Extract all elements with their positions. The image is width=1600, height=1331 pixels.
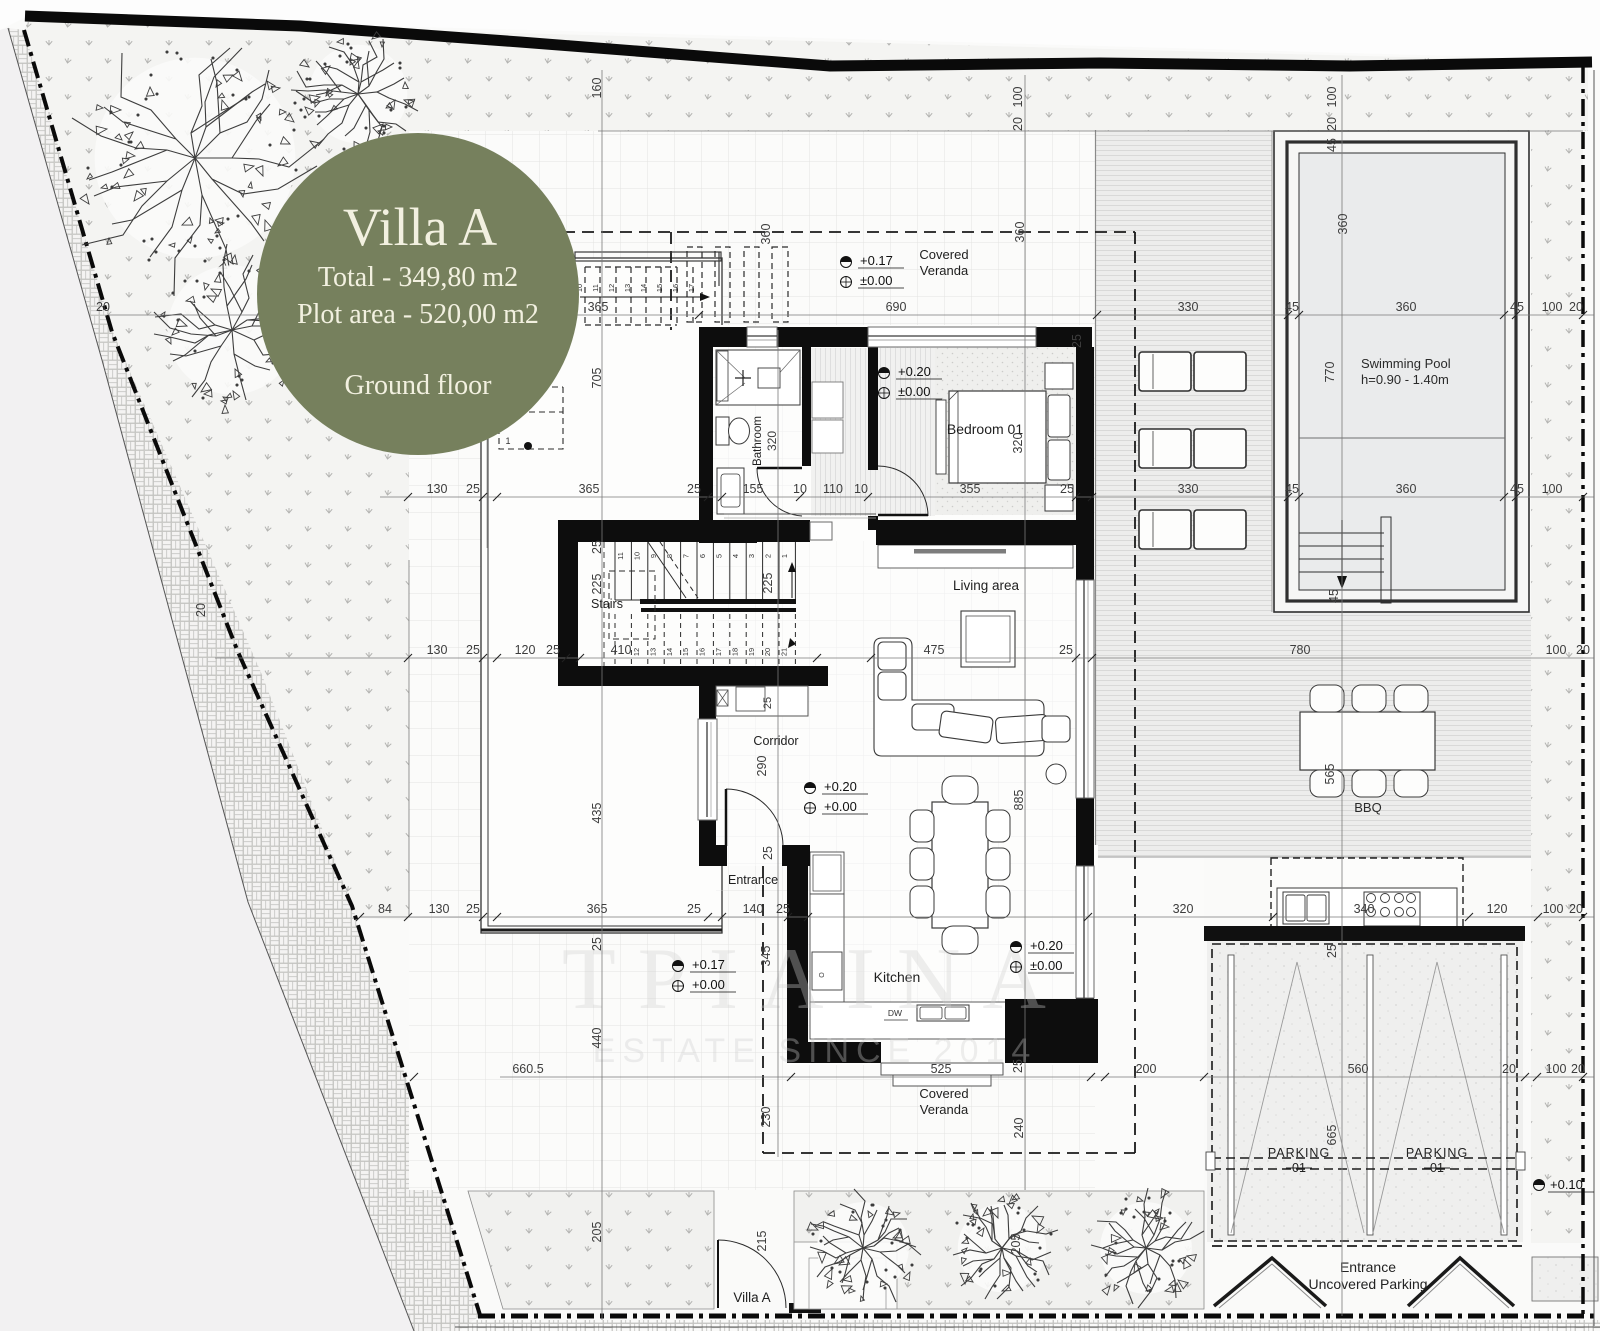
svg-text:100: 100 — [1546, 1062, 1567, 1076]
svg-text:560: 560 — [1348, 1062, 1369, 1076]
svg-text:45: 45 — [1285, 300, 1299, 314]
svg-text:290: 290 — [755, 756, 769, 777]
svg-text:±0.00: ±0.00 — [898, 384, 930, 399]
svg-text:130: 130 — [427, 643, 448, 657]
svg-text:Stairs: Stairs — [591, 597, 623, 611]
svg-text:360: 360 — [1396, 482, 1417, 496]
svg-text:+0.20: +0.20 — [898, 364, 931, 379]
svg-text:435: 435 — [590, 803, 604, 824]
svg-text:45: 45 — [1327, 589, 1341, 603]
svg-text:13: 13 — [623, 284, 632, 292]
svg-text:320: 320 — [1173, 902, 1194, 916]
svg-text:225: 225 — [590, 574, 604, 595]
svg-text:9: 9 — [649, 554, 658, 558]
svg-text:100: 100 — [1542, 300, 1563, 314]
svg-text:215: 215 — [755, 1231, 769, 1252]
svg-text:320: 320 — [1011, 433, 1025, 454]
svg-text:16: 16 — [698, 648, 707, 656]
svg-text:45: 45 — [1510, 482, 1524, 496]
svg-text:+0.00: +0.00 — [692, 977, 725, 992]
svg-text:3: 3 — [747, 554, 756, 558]
svg-text:14: 14 — [639, 284, 648, 292]
svg-text:25: 25 — [590, 540, 604, 554]
svg-text:+0.17: +0.17 — [692, 957, 725, 972]
svg-text:Living area: Living area — [953, 578, 1020, 593]
svg-text:19: 19 — [747, 648, 756, 656]
svg-text:4: 4 — [731, 554, 740, 558]
svg-text:345: 345 — [759, 946, 773, 967]
svg-text:25: 25 — [466, 643, 480, 657]
svg-text:17: 17 — [687, 284, 696, 292]
svg-text:20: 20 — [1576, 643, 1590, 657]
svg-text:5: 5 — [714, 554, 723, 558]
svg-text:20: 20 — [96, 300, 110, 314]
svg-text:660.5: 660.5 — [512, 1062, 543, 1076]
svg-text:Veranda: Veranda — [920, 1102, 969, 1117]
svg-text:Villa A: Villa A — [343, 197, 497, 257]
svg-text:780: 780 — [1290, 643, 1311, 657]
svg-text:205: 205 — [590, 1222, 604, 1243]
svg-text:16: 16 — [671, 284, 680, 292]
svg-text:15: 15 — [681, 648, 690, 656]
svg-text:11: 11 — [616, 552, 625, 560]
svg-text:Covered: Covered — [919, 247, 968, 262]
svg-text:25: 25 — [687, 482, 701, 496]
svg-text:20: 20 — [1571, 1062, 1585, 1076]
svg-text:360: 360 — [1396, 300, 1417, 314]
svg-text:330: 330 — [1178, 300, 1199, 314]
svg-text:330: 330 — [1178, 482, 1199, 496]
svg-text:Veranda: Veranda — [920, 263, 969, 278]
svg-text:25: 25 — [761, 846, 775, 860]
svg-text:230: 230 — [759, 1107, 773, 1128]
svg-text:12: 12 — [607, 284, 616, 292]
svg-text:PARKING: PARKING — [1268, 1146, 1330, 1160]
svg-text:25: 25 — [1011, 1059, 1025, 1073]
svg-text:Entrance: Entrance — [1340, 1259, 1396, 1275]
svg-text:Total - 349,80 m2: Total - 349,80 m2 — [318, 262, 518, 293]
svg-text:160: 160 — [590, 78, 604, 99]
svg-text:10: 10 — [632, 552, 641, 560]
svg-text:13: 13 — [648, 648, 657, 656]
svg-text:Uncovered Parking: Uncovered Parking — [1308, 1276, 1427, 1292]
svg-text:360: 360 — [1013, 222, 1027, 243]
svg-text:11: 11 — [591, 284, 600, 292]
svg-text:+0.00: +0.00 — [824, 799, 857, 814]
svg-text:690: 690 — [886, 300, 907, 314]
svg-text:120: 120 — [1487, 902, 1508, 916]
svg-text:25: 25 — [466, 482, 480, 496]
svg-text:20: 20 — [194, 603, 208, 617]
svg-text:355: 355 — [960, 482, 981, 496]
svg-text:17: 17 — [714, 648, 723, 656]
svg-text:240: 240 — [1012, 1118, 1026, 1139]
svg-text:365: 365 — [587, 902, 608, 916]
svg-text:440: 440 — [590, 1028, 604, 1049]
svg-text:Covered: Covered — [919, 1086, 968, 1101]
svg-text:Ground floor: Ground floor — [345, 370, 493, 401]
svg-text:100: 100 — [1542, 482, 1563, 496]
svg-text:25: 25 — [762, 697, 774, 709]
svg-text:525: 525 — [931, 1062, 952, 1076]
svg-text:100: 100 — [1325, 87, 1339, 108]
svg-text:340: 340 — [1354, 902, 1375, 916]
svg-text:885: 885 — [1012, 790, 1026, 811]
svg-text:25: 25 — [1325, 944, 1339, 958]
svg-text:25: 25 — [1070, 334, 1084, 348]
svg-text:120: 120 — [515, 643, 536, 657]
svg-text:25: 25 — [776, 902, 790, 916]
svg-text:+0.17: +0.17 — [860, 253, 893, 268]
svg-text:8: 8 — [665, 554, 674, 558]
svg-text:45: 45 — [1285, 482, 1299, 496]
svg-text:25: 25 — [466, 902, 480, 916]
svg-text:h=0.90 - 1.40m: h=0.90 - 1.40m — [1361, 372, 1449, 387]
svg-text:6: 6 — [698, 554, 707, 558]
svg-text:365: 365 — [579, 482, 600, 496]
svg-text:Bathroom: Bathroom — [752, 416, 764, 466]
svg-text:84: 84 — [378, 902, 392, 916]
svg-text:Swimming Pool: Swimming Pool — [1361, 356, 1451, 371]
svg-text:475: 475 — [924, 643, 945, 657]
svg-text:320: 320 — [765, 431, 779, 451]
svg-text:12: 12 — [632, 648, 641, 656]
svg-text:TPIAINA: TPIAINA — [562, 931, 1068, 1028]
svg-text:20: 20 — [1502, 1062, 1516, 1076]
svg-text:100: 100 — [1543, 902, 1564, 916]
svg-text:200: 200 — [1136, 1062, 1157, 1076]
svg-text:21: 21 — [780, 648, 789, 656]
svg-text:45: 45 — [1510, 300, 1524, 314]
svg-text:770: 770 — [1323, 362, 1337, 383]
svg-text:10: 10 — [854, 482, 868, 496]
svg-text:155: 155 — [743, 482, 764, 496]
svg-text:Villa A: Villa A — [733, 1290, 770, 1305]
svg-text:1: 1 — [780, 554, 789, 558]
svg-text:+0.20: +0.20 — [1030, 938, 1063, 953]
svg-text:25: 25 — [687, 902, 701, 916]
svg-text:Entrance: Entrance — [728, 873, 778, 887]
svg-text:10: 10 — [793, 482, 807, 496]
svg-text:360: 360 — [1336, 214, 1350, 235]
svg-text:ESTATE SINCE 2014: ESTATE SINCE 2014 — [593, 1032, 1038, 1070]
svg-text:±0.00: ±0.00 — [860, 273, 892, 288]
svg-text:1: 1 — [505, 436, 510, 446]
svg-text:225: 225 — [761, 573, 775, 594]
svg-text:7: 7 — [682, 554, 691, 558]
svg-text:25: 25 — [1060, 482, 1074, 496]
svg-text:20: 20 — [1569, 902, 1583, 916]
svg-text:20: 20 — [1325, 117, 1339, 131]
svg-text:365: 365 — [588, 300, 609, 314]
svg-text:100: 100 — [1011, 87, 1025, 108]
svg-text:20: 20 — [1569, 300, 1583, 314]
svg-text:140: 140 — [743, 902, 764, 916]
svg-text:705: 705 — [590, 368, 604, 389]
svg-text:±0.00: ±0.00 — [1030, 958, 1062, 973]
svg-text:+0.10: +0.10 — [1550, 1177, 1583, 1192]
svg-text:Corridor: Corridor — [753, 734, 798, 748]
svg-text:25: 25 — [1059, 643, 1073, 657]
svg-text:205: 205 — [1009, 1234, 1023, 1255]
svg-text:15: 15 — [655, 284, 664, 292]
svg-text:130: 130 — [427, 482, 448, 496]
svg-text:25: 25 — [546, 643, 560, 657]
svg-text:Plot area - 520,00 m2: Plot area - 520,00 m2 — [297, 299, 539, 330]
svg-text:100: 100 — [1546, 643, 1567, 657]
svg-text:45: 45 — [1325, 138, 1339, 152]
svg-text:410: 410 — [611, 643, 632, 657]
svg-text:18: 18 — [730, 648, 739, 656]
svg-text:665: 665 — [1325, 1125, 1339, 1146]
svg-text:14: 14 — [665, 648, 674, 656]
svg-text:360: 360 — [759, 224, 773, 245]
svg-text:BBQ: BBQ — [1354, 800, 1381, 815]
svg-text:PARKING: PARKING — [1406, 1146, 1468, 1160]
svg-text:565: 565 — [1323, 764, 1337, 785]
svg-text:110: 110 — [823, 482, 843, 496]
svg-text:+0.20: +0.20 — [824, 779, 857, 794]
svg-text:25: 25 — [590, 937, 604, 951]
svg-text:2: 2 — [764, 554, 773, 558]
svg-text:20: 20 — [1011, 117, 1025, 131]
svg-text:20: 20 — [763, 648, 772, 656]
svg-text:130: 130 — [429, 902, 450, 916]
